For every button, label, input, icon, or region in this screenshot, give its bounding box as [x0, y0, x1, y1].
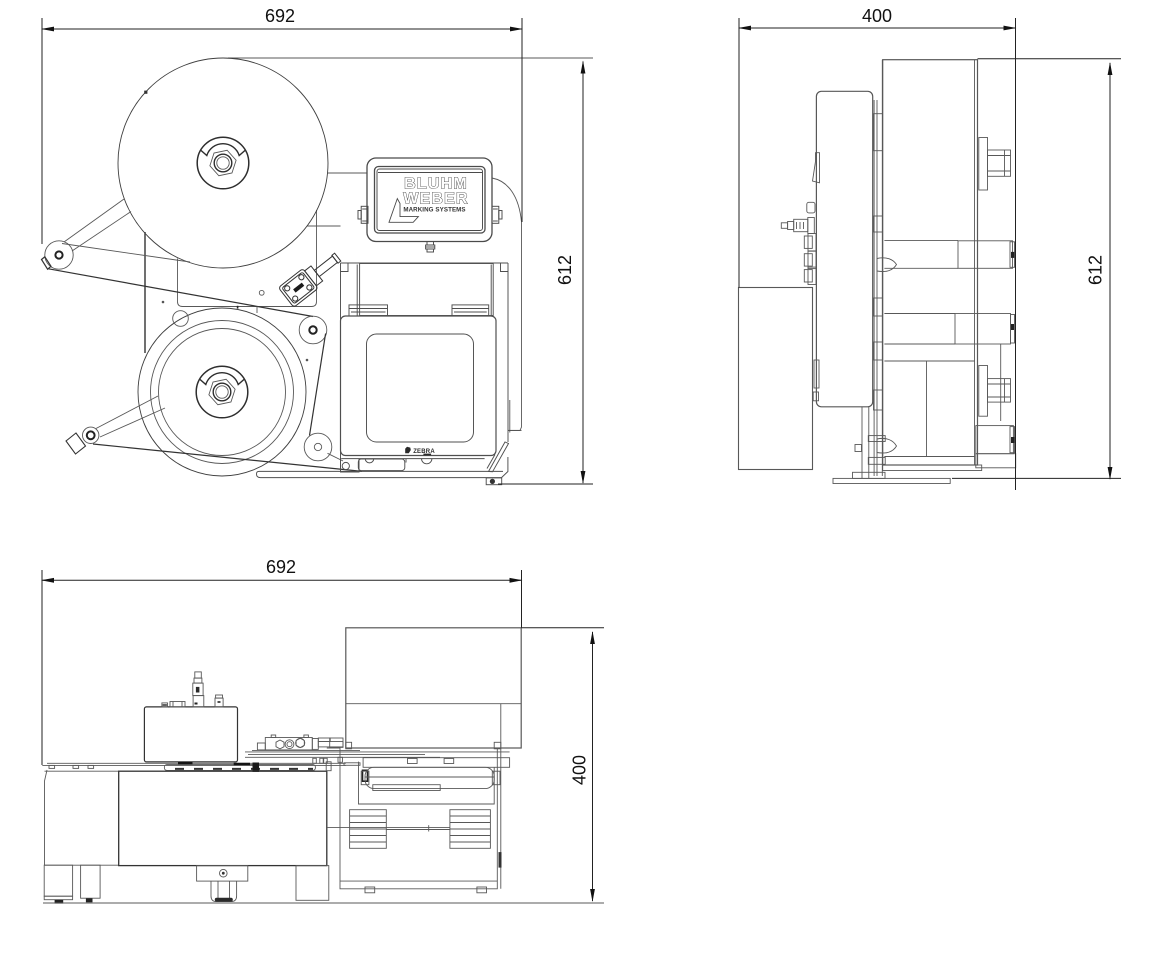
svg-text:MARKING SYSTEMS: MARKING SYSTEMS	[403, 206, 465, 213]
svg-text:612: 612	[555, 255, 575, 285]
svg-text:692: 692	[266, 557, 296, 577]
svg-text:692: 692	[265, 6, 295, 26]
svg-text:612: 612	[1086, 255, 1106, 285]
svg-text:WEBER: WEBER	[403, 191, 469, 208]
svg-text:400: 400	[862, 6, 892, 26]
svg-text:400: 400	[570, 755, 590, 785]
